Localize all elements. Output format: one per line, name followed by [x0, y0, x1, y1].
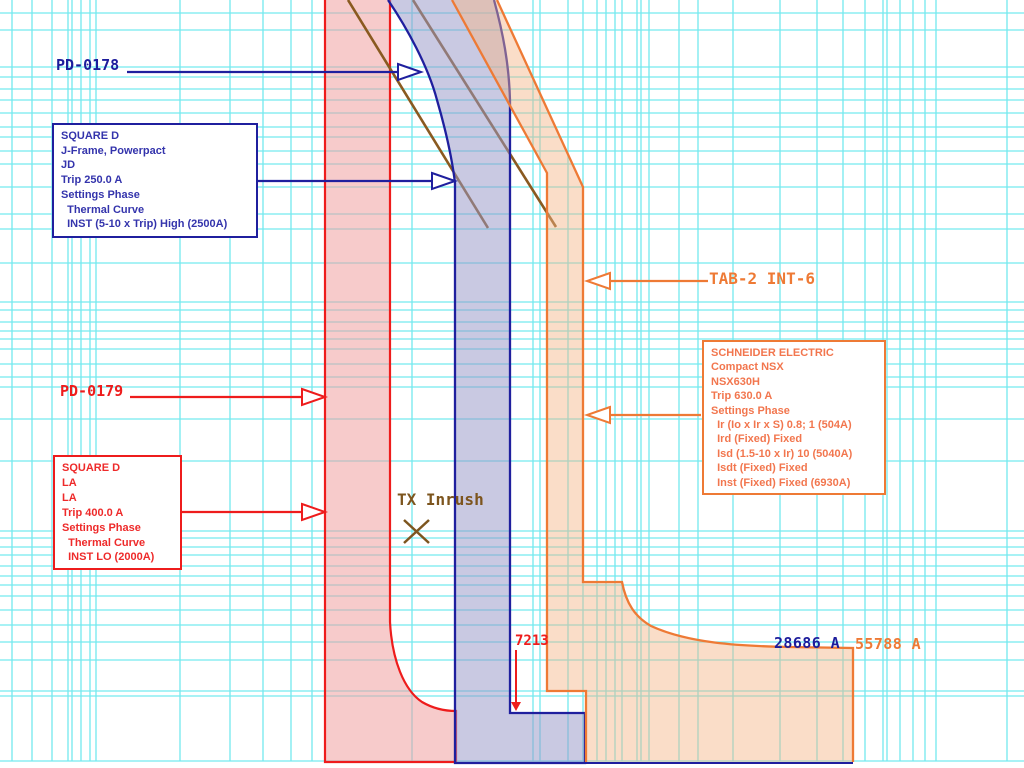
- fault-marker-arrow: [511, 702, 521, 711]
- fault-current-label-7213: 7213: [515, 634, 549, 649]
- device-box-line: Isd (1.5-10 x Ir) 10 (5040A): [711, 447, 877, 461]
- pd-0179-arrowhead-icon: [302, 389, 325, 405]
- device-box-line: Settings Phase: [711, 404, 877, 418]
- fault-current-label-28686: 28686 A: [774, 636, 840, 652]
- device-box-line: Settings Phase: [62, 521, 173, 536]
- device-box-line: Ird (Fixed) Fixed: [711, 432, 877, 446]
- device-info-box-jd[interactable]: SQUARE D J-Frame, Powerpact JD Trip 250.…: [52, 123, 258, 238]
- nsx-box-arrowhead-icon: [587, 407, 610, 423]
- device-box-line: Isdt (Fixed) Fixed: [711, 461, 877, 475]
- device-box-line: JD: [61, 158, 249, 173]
- device-box-line: Trip 400.0 A: [62, 506, 173, 521]
- la-box-arrowhead-icon: [302, 504, 325, 520]
- tcc-coordination-plot: PD-0178 PD-0179 TAB-2 INT-6 TX Inrush 72…: [0, 0, 1024, 768]
- device-box-line: LA: [62, 476, 173, 491]
- device-label-tab-2-int-6[interactable]: TAB-2 INT-6: [709, 271, 815, 288]
- device-label-pd-0178[interactable]: PD-0178: [56, 58, 119, 74]
- device-box-line: INST (5-10 x Trip) High (2500A): [61, 217, 249, 232]
- fault-current-label-55788: 55788 A: [855, 637, 921, 653]
- device-box-line: Inst (Fixed) Fixed (6930A): [711, 476, 877, 490]
- device-box-line: Trip 250.0 A: [61, 173, 249, 188]
- device-box-line: LA: [62, 491, 173, 506]
- device-box-line: Ir (Io x Ir x S) 0.8; 1 (504A): [711, 418, 877, 432]
- device-box-line: SQUARE D: [61, 129, 249, 144]
- device-box-line: Trip 630.0 A: [711, 389, 877, 403]
- device-box-line: Settings Phase: [61, 188, 249, 203]
- device-box-line: SQUARE D: [62, 461, 173, 476]
- fault-marker-7213: [511, 650, 521, 711]
- device-box-line: SCHNEIDER ELECTRIC: [711, 346, 877, 360]
- device-box-line: INST LO (2000A): [62, 550, 173, 565]
- device-box-line: NSX630H: [711, 375, 877, 389]
- tx-inrush-label[interactable]: TX Inrush: [397, 492, 484, 509]
- device-box-line: Thermal Curve: [62, 536, 173, 551]
- device-box-line: Compact NSX: [711, 360, 877, 374]
- device-info-box-nsx[interactable]: SCHNEIDER ELECTRIC Compact NSX NSX630H T…: [702, 340, 886, 495]
- device-label-pd-0179[interactable]: PD-0179: [60, 384, 123, 400]
- device-box-line: J-Frame, Powerpact: [61, 144, 249, 159]
- device-box-line: Thermal Curve: [61, 203, 249, 218]
- tab-2-arrowhead-icon: [587, 273, 610, 289]
- device-info-box-la[interactable]: SQUARE D LA LA Trip 400.0 A Settings Pha…: [53, 455, 182, 570]
- pd-0179-curve-band[interactable]: [325, 0, 456, 762]
